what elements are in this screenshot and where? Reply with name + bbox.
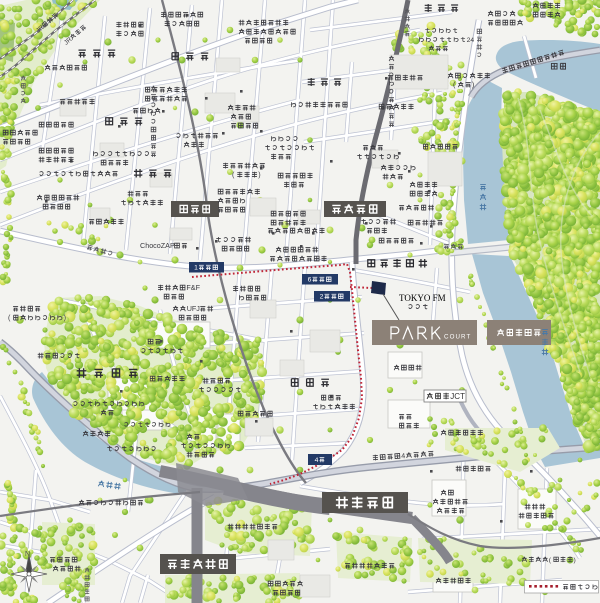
- svg-text:24: 24: [467, 37, 475, 44]
- svg-text:COURT: COURT: [444, 334, 471, 341]
- svg-text:ChocoZAP: ChocoZAP: [140, 241, 175, 250]
- svg-text:2: 2: [320, 294, 324, 301]
- svg-text:N: N: [25, 551, 30, 558]
- svg-text:JCT: JCT: [450, 392, 465, 401]
- svg-text:F&F: F&F: [186, 283, 200, 292]
- svg-text:4: 4: [401, 451, 406, 460]
- svg-text:6: 6: [308, 277, 312, 284]
- svg-text:UFJ: UFJ: [187, 304, 201, 313]
- svg-text:TOKYO FM: TOKYO FM: [399, 293, 446, 303]
- svg-text:): ): [64, 313, 66, 322]
- svg-text:): ): [258, 170, 260, 179]
- svg-text:): ): [574, 557, 576, 564]
- svg-text:1: 1: [194, 265, 198, 272]
- svg-text:4: 4: [315, 457, 319, 464]
- svg-text:): ): [472, 80, 474, 89]
